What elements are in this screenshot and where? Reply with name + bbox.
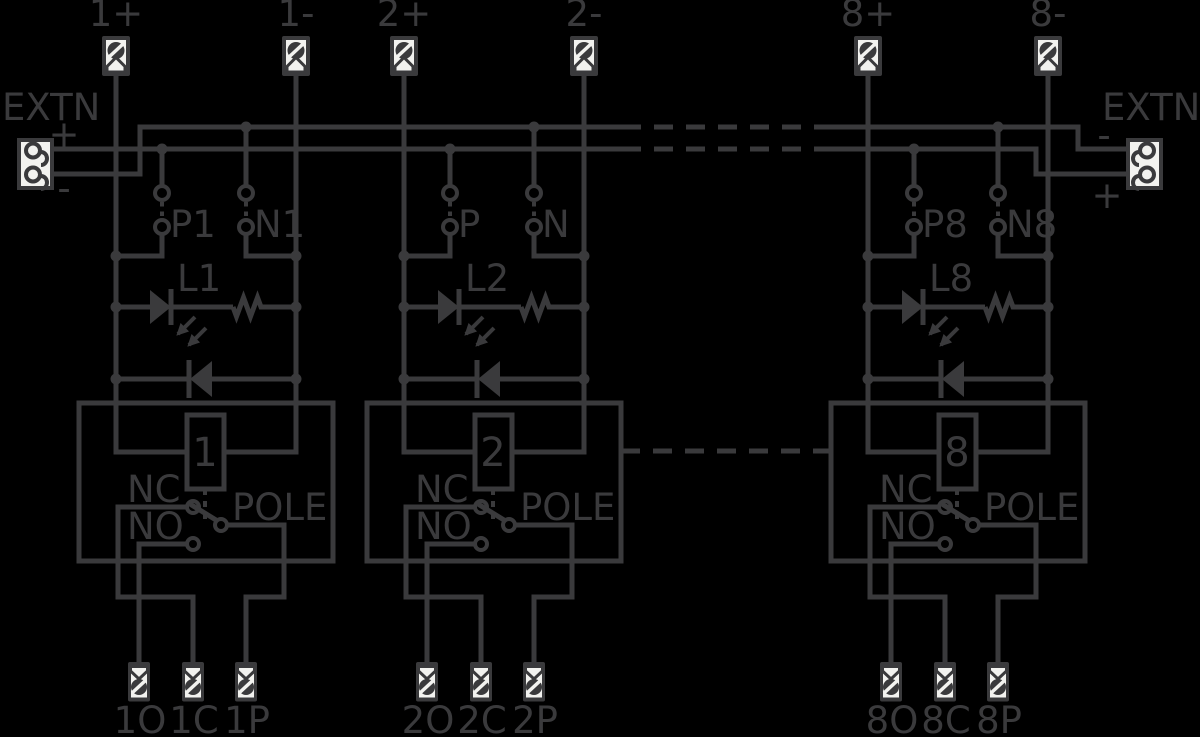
- channel-wiring: [79, 36, 333, 702]
- pole-label: POLE: [984, 486, 1079, 529]
- extn-contact: [26, 168, 40, 182]
- output-c-label: 2C: [457, 699, 506, 737]
- p-jumper-label: P: [458, 203, 480, 246]
- input-minus-label: 2-: [566, 0, 603, 35]
- led-label: L2: [465, 257, 509, 300]
- extn-contact: [1140, 144, 1154, 158]
- relay-module-schematic: EXTN + - EXTN - + 1+ 1- P1 N1 L1 1 NC NO…: [0, 0, 1200, 737]
- input-minus-label: 8-: [1030, 0, 1067, 35]
- output-p-label: 8P: [976, 699, 1022, 737]
- no-label: NO: [127, 505, 184, 548]
- coil-number: 2: [480, 430, 505, 476]
- coil-number: 8: [944, 430, 969, 476]
- minus-bus: [830, 127, 1128, 149]
- led-label: L8: [929, 257, 973, 300]
- output-p-label: 2P: [512, 699, 558, 737]
- pole-label: POLE: [520, 486, 615, 529]
- no-label: NO: [415, 505, 472, 548]
- channel-8: 8+ 8- P8 N8 L8 8 NC NO POLE 8O 8C 8P: [831, 0, 1085, 737]
- output-o-label: 1O: [114, 699, 167, 737]
- output-c-label: 8C: [921, 699, 970, 737]
- input-plus-label: 1+: [89, 0, 144, 35]
- extn-left-plus-sign: +: [48, 113, 79, 156]
- pole-label: POLE: [232, 486, 327, 529]
- input-plus-label: 2+: [377, 0, 432, 35]
- extn-right-label: EXTN: [1102, 86, 1200, 129]
- input-plus-label: 8+: [841, 0, 896, 35]
- extn-contact: [26, 144, 40, 158]
- extn-right-connector: EXTN - +: [1091, 86, 1200, 217]
- extn-right-minus-sign: -: [1097, 114, 1110, 157]
- led-label: L1: [177, 257, 221, 300]
- channel-1: 1+ 1- P1 N1 L1 1 NC NO POLE 1O 1C 1P: [79, 0, 333, 737]
- p-jumper-label: P1: [170, 203, 216, 246]
- input-minus-label: 1-: [278, 0, 315, 35]
- extn-left-minus-sign: -: [57, 167, 70, 210]
- n-jumper-label: N8: [1006, 203, 1057, 246]
- n-jumper-label: N1: [254, 203, 305, 246]
- channel-2: 2+ 2- P N L2 2 NC NO POLE 2O 2C 2P: [367, 0, 621, 737]
- no-label: NO: [879, 505, 936, 548]
- extn-right-plus-sign: +: [1091, 174, 1122, 217]
- output-p-label: 1P: [224, 699, 270, 737]
- channel-wiring: [831, 36, 1085, 702]
- p-jumper-label: P8: [922, 203, 968, 246]
- extn-contact: [1140, 168, 1154, 182]
- channel-wiring: [367, 36, 621, 702]
- coil-number: 1: [192, 430, 217, 476]
- output-o-label: 8O: [866, 699, 919, 737]
- plus-bus: [830, 149, 1128, 174]
- output-o-label: 2O: [402, 699, 455, 737]
- output-c-label: 1C: [169, 699, 218, 737]
- n-jumper-label: N: [542, 203, 570, 246]
